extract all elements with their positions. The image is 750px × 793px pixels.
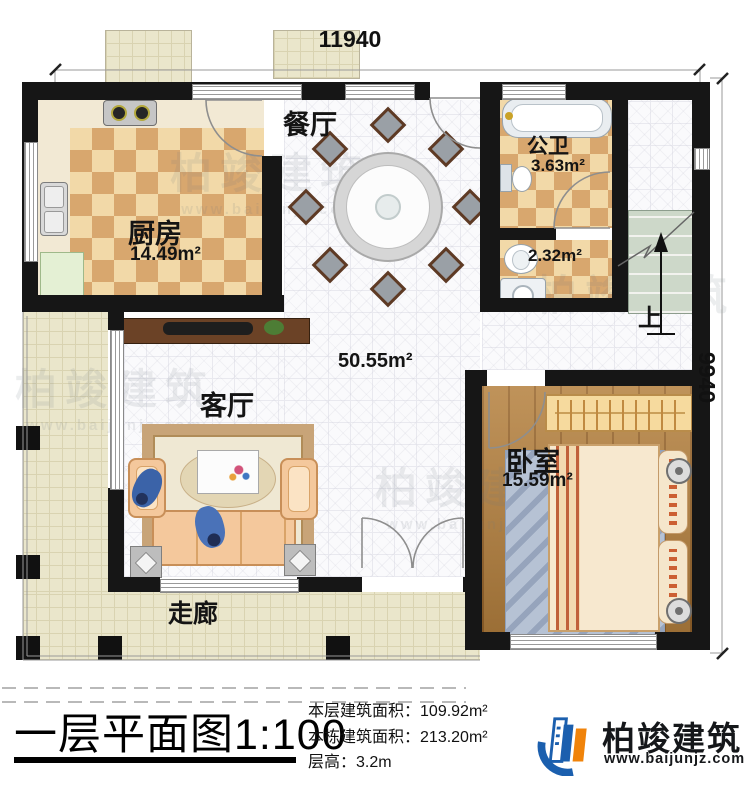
terrace-left (105, 30, 192, 84)
porch-column (16, 555, 40, 579)
window-living-south (160, 579, 299, 593)
wall-bedroom-west (465, 370, 482, 650)
wall-bedroom-north-b (545, 370, 710, 386)
stairs-up-label: 上 (638, 298, 662, 333)
wall-living-west (108, 488, 124, 577)
stove-burner (111, 105, 127, 121)
porch-column (326, 636, 350, 660)
toilet-tank (500, 164, 512, 192)
dimension-height: 9940 (693, 352, 720, 403)
room-area-washroom: 2.32m² (528, 246, 582, 266)
window-stair-east (694, 148, 710, 170)
stat-value: 3.2m (356, 754, 392, 771)
wall-bath-divider (500, 228, 556, 240)
porch-column (16, 426, 40, 450)
side-table-lamp (284, 544, 316, 576)
bathtub-faucet (505, 112, 513, 120)
wall-living-south-a (108, 577, 160, 592)
stat-label: 本栋建筑面积： (308, 729, 420, 746)
coffee-table (197, 450, 259, 494)
stair-landing-floor (628, 100, 692, 212)
stat-row: 本层建筑面积：109.92m² (308, 699, 488, 725)
window-living-west (110, 330, 124, 490)
room-area-kitchen: 14.49m² (130, 244, 201, 266)
fridge (40, 252, 84, 296)
room-label-corridor: 走廊 (168, 594, 218, 630)
plan-title: 一层平面图1:100 (14, 700, 347, 762)
plant (264, 320, 284, 335)
porch-column (16, 636, 40, 660)
porch-floor (23, 312, 108, 592)
wall-bath-west (480, 100, 500, 298)
wall-corridor-end (468, 634, 494, 650)
wall-stair-west (612, 100, 628, 298)
window-kitchen-west (24, 142, 38, 262)
armchair-right (280, 458, 318, 520)
wall-living-south-c (463, 577, 482, 592)
room-label-living: 客厅 (200, 384, 254, 423)
entry-door-opening (430, 82, 480, 100)
stat-value: 109.92m² (420, 703, 488, 720)
room-area-bath: 3.63m² (531, 156, 585, 176)
wall-living-south-b (297, 577, 362, 592)
stat-value: 213.20m² (420, 729, 488, 746)
building-stats: 本层建筑面积：109.92m² 本栋建筑面积：213.20m² 层高：3.2m (308, 699, 488, 776)
dining-table-center (375, 194, 401, 220)
window-north-1 (192, 84, 302, 100)
toilet-bowl (512, 166, 532, 192)
window-bedroom-south (510, 634, 657, 650)
side-table-lamp (130, 546, 162, 578)
title-underline (14, 757, 296, 763)
stat-row: 本栋建筑面积：213.20m² (308, 725, 488, 751)
plan-title-text: 一层平面图 (14, 711, 234, 759)
room-area-bedroom: 15.59m² (502, 470, 573, 492)
window-bath (502, 84, 566, 100)
tv (163, 322, 253, 335)
wardrobe (545, 394, 693, 432)
stove-burner (134, 105, 150, 121)
corridor-floor (23, 592, 480, 660)
kitchen-sink (40, 182, 68, 236)
room-area-hall: 50.55m² (338, 350, 413, 373)
wall-living-west-pier (108, 312, 124, 330)
stat-row: 层高：3.2m (308, 750, 488, 776)
stat-label: 本层建筑面积： (308, 703, 420, 720)
porch-column (98, 636, 122, 660)
headboard-knob (666, 458, 692, 484)
wall-washroom-south (480, 298, 628, 312)
headboard-knob (666, 598, 692, 624)
stat-label: 层高： (308, 754, 356, 771)
brand-website: www.baijunjz.com (604, 751, 745, 767)
wall-kitchen-east (262, 156, 282, 295)
wall-kitchen-south (22, 295, 284, 312)
wall-bedroom-south-b (655, 632, 710, 650)
window-north-2 (345, 84, 415, 100)
brand-logo-icon (536, 712, 598, 776)
floor-plan-page: 柏竣建筑 www.baijunjz.com 柏竣建筑 www.baijunjz.… (0, 0, 750, 793)
dimension-width: 11940 (280, 26, 420, 53)
room-label-dining: 餐厅 (283, 103, 337, 142)
